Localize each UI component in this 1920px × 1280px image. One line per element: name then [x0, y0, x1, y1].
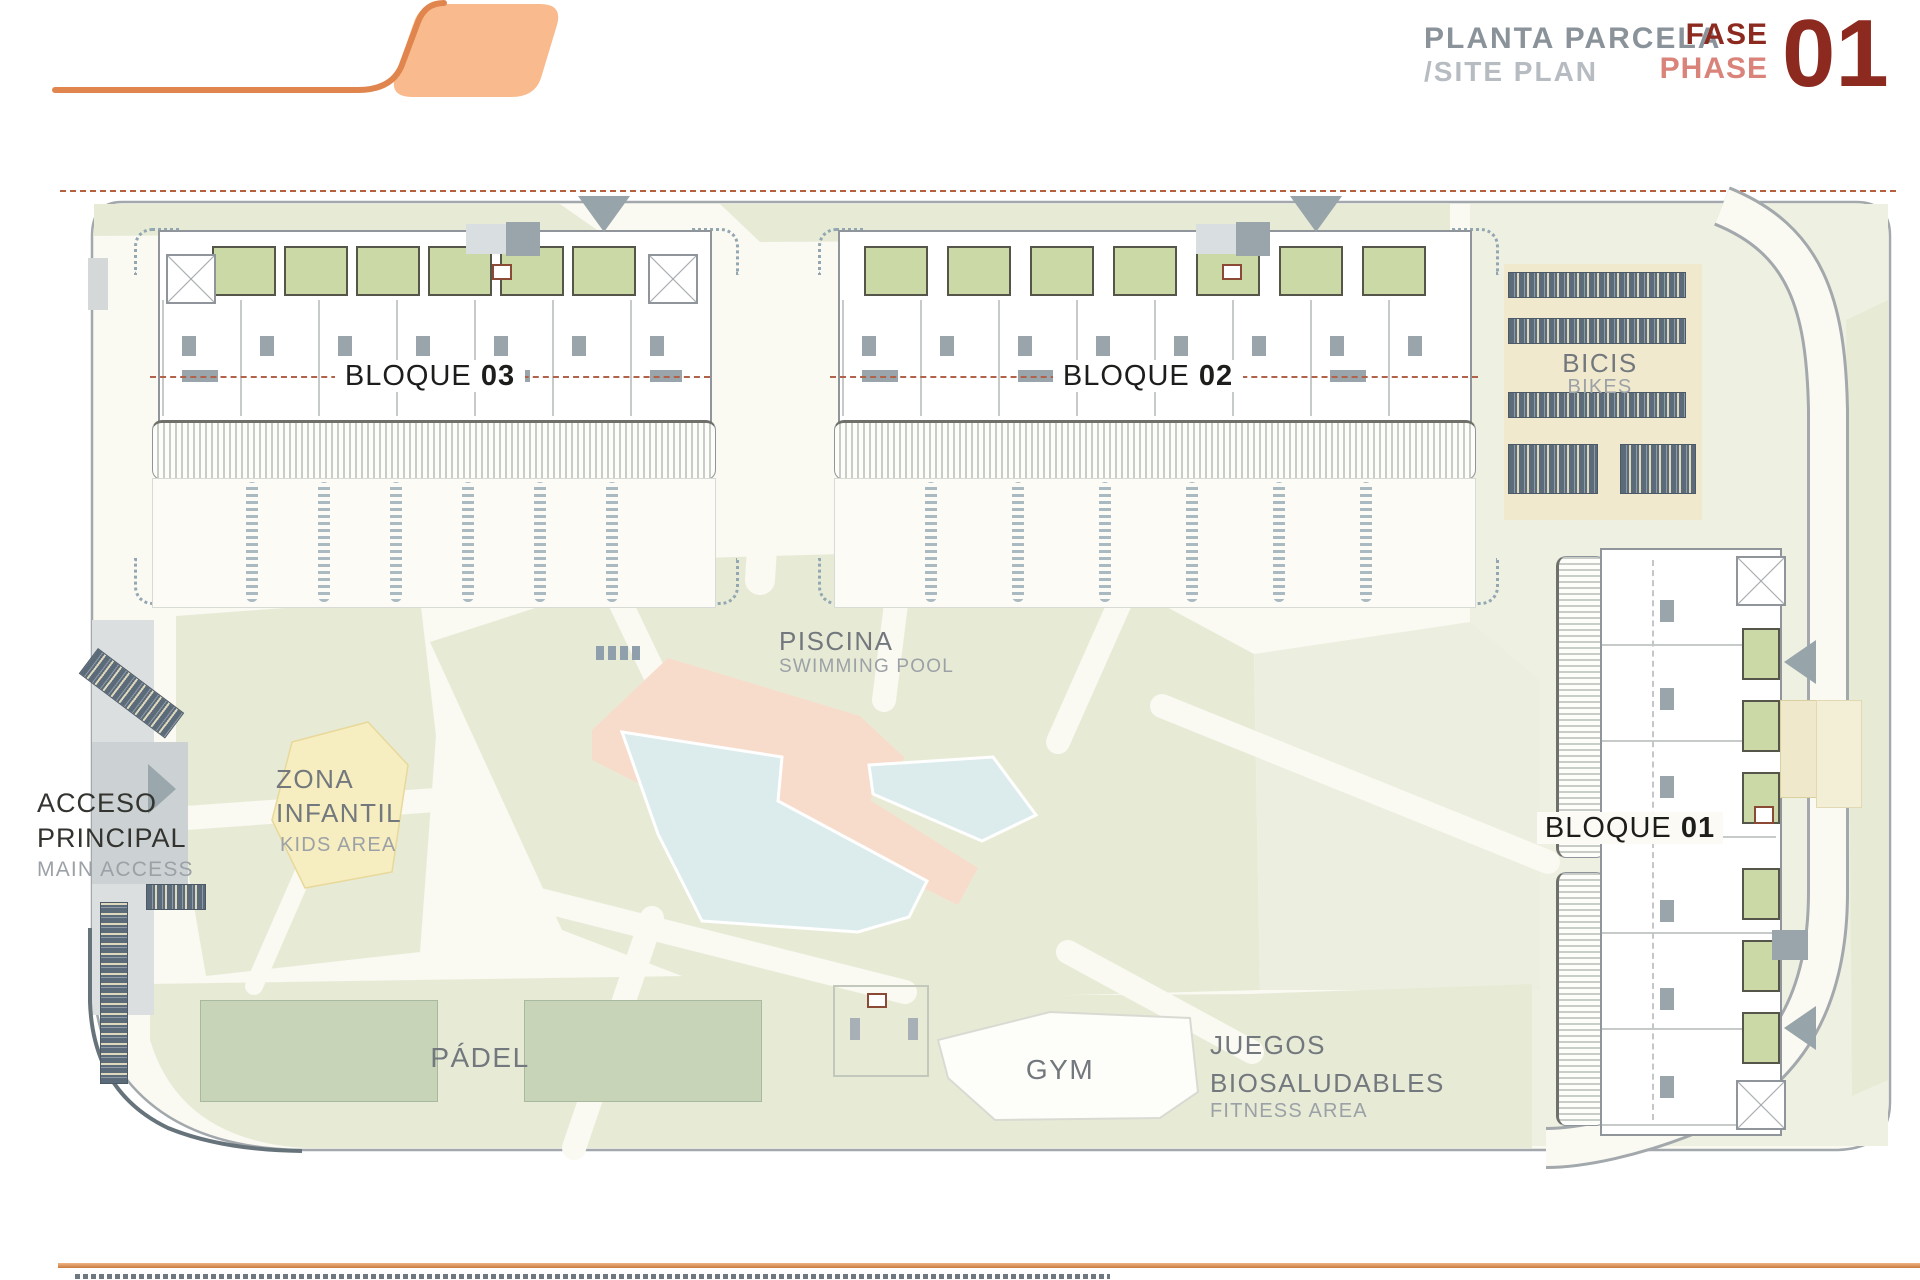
bike-rack-row: [1508, 444, 1598, 494]
kids-label-es1: ZONA: [276, 764, 354, 795]
fitness-label-es1: JUEGOS: [1210, 1030, 1326, 1061]
patio: [1742, 700, 1780, 752]
bloque-02-unit-lines: [842, 300, 1466, 416]
patio: [947, 246, 1011, 296]
bloque-03-unit-lines: [162, 300, 706, 416]
fitness-label-en: FITNESS AREA: [1210, 1100, 1368, 1123]
stair-core: [1660, 1076, 1674, 1098]
bloque-03-stair-cores: [182, 336, 682, 356]
terrace-deck-2: [1816, 700, 1862, 808]
entry-marker-icon: [1784, 1006, 1816, 1050]
garden-hedge: [390, 482, 402, 602]
bloque-02-stair-cores: [862, 336, 1452, 356]
entrance-canopy: [1196, 224, 1236, 254]
padel-label: PÁDEL: [400, 1042, 560, 1074]
elevator-core: [648, 254, 698, 304]
site-plan-page: PLANTA PARCELA /SITE PLAN FASE PHASE 01: [0, 0, 1920, 1280]
garden-hedge: [462, 482, 474, 602]
garden-hedge: [1012, 482, 1024, 602]
entrance-core: [1772, 930, 1808, 960]
entrance-core: [1236, 222, 1270, 256]
stair-icon: [1754, 806, 1774, 824]
garden-hedge: [318, 482, 330, 602]
stair-core: [1660, 600, 1674, 622]
patio: [1742, 1012, 1780, 1064]
garden-hedge: [1186, 482, 1198, 602]
entrance-core: [506, 222, 540, 256]
bikes-label-es: BICIS: [1520, 348, 1680, 379]
elevator-core: [166, 254, 216, 304]
bike-rack-row: [1620, 444, 1696, 494]
garden-hedge: [925, 482, 937, 602]
pool-label-en: SWIMMING POOL: [779, 656, 954, 678]
stair-core: [1660, 776, 1674, 798]
stair-core: [1660, 988, 1674, 1010]
bloque-01-pergola-bottom: [1556, 872, 1606, 1126]
bikes-label-en: BIKES: [1520, 376, 1680, 399]
bloque-03-label: BLOQUE 03: [310, 360, 550, 393]
bloque-02-label: BLOQUE 02: [1028, 360, 1268, 393]
garden-hedge: [246, 482, 258, 602]
access-label-es1: ACCESO: [37, 788, 157, 819]
parking-strip-v: [100, 902, 128, 1084]
patio: [284, 246, 348, 296]
garden-hedge: [606, 482, 618, 602]
pool-label-es: PISCINA: [779, 626, 894, 657]
access-label-en: MAIN ACCESS: [37, 858, 194, 882]
garden-hedge: [1360, 482, 1372, 602]
fitness-label-es2: BIOSALUDABLES: [1210, 1068, 1445, 1099]
patio: [212, 246, 276, 296]
bloque-01-label: BLOQUE 01: [1510, 812, 1750, 845]
kids-label-en: KIDS AREA: [280, 834, 396, 857]
bloque-03-gardens: [152, 478, 716, 608]
access-label-es2: PRINCIPAL: [37, 823, 187, 854]
cutoff-fine-print: [75, 1274, 1110, 1279]
gym-label: GYM: [1010, 1054, 1110, 1086]
patio: [1362, 246, 1426, 296]
patio: [1030, 246, 1094, 296]
stair-core: [1660, 688, 1674, 710]
garden-hedge: [1273, 482, 1285, 602]
bike-rack-row: [1508, 272, 1686, 298]
north-marker-icon: [578, 196, 630, 232]
garden-hedge: [534, 482, 546, 602]
bloque-02-pergola: [834, 420, 1476, 480]
patio: [1279, 246, 1343, 296]
bike-rack-row: [1508, 318, 1686, 344]
entry-marker-icon: [1784, 640, 1816, 684]
entrance-canopy: [466, 224, 506, 254]
elevator-core: [1736, 556, 1786, 606]
patio: [1742, 628, 1780, 680]
bloque-03-pergola: [152, 420, 716, 480]
elevator-core: [1736, 1080, 1786, 1130]
patio: [572, 246, 636, 296]
garden-hedge: [1099, 482, 1111, 602]
kids-label-es2: INFANTIL: [276, 798, 402, 829]
terrace-deck: [1780, 700, 1818, 798]
stair-icon: [1222, 264, 1242, 280]
stair-core: [1660, 900, 1674, 922]
patio: [864, 246, 928, 296]
patio: [356, 246, 420, 296]
parking-strip-h: [146, 884, 206, 910]
footer-rule: [58, 1263, 1920, 1268]
pool-loungers: [596, 646, 642, 660]
north-marker-icon: [1290, 196, 1342, 232]
patio: [1113, 246, 1177, 296]
patio: [1742, 868, 1780, 920]
stair-icon: [492, 264, 512, 280]
